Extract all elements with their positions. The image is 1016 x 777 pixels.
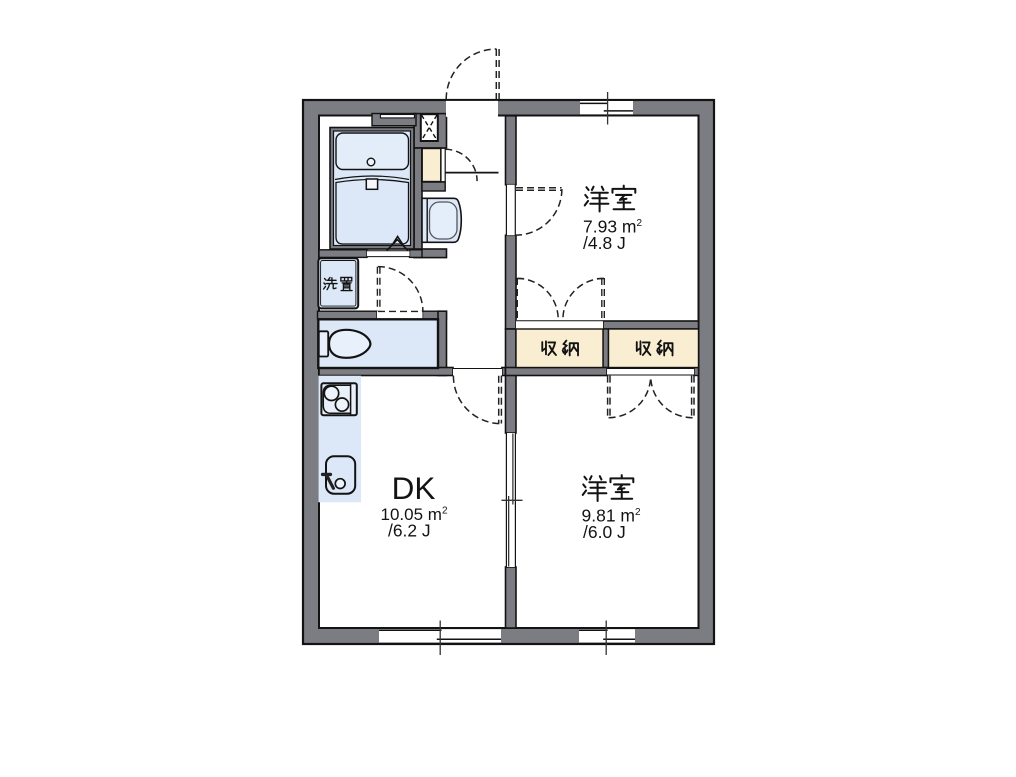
svg-text:/4.8 J: /4.8 J (583, 233, 626, 253)
svg-text:/6.0 J: /6.0 J (583, 522, 626, 542)
svg-text:/6.2 J: /6.2 J (388, 521, 431, 541)
svg-text:DK: DK (392, 470, 436, 506)
